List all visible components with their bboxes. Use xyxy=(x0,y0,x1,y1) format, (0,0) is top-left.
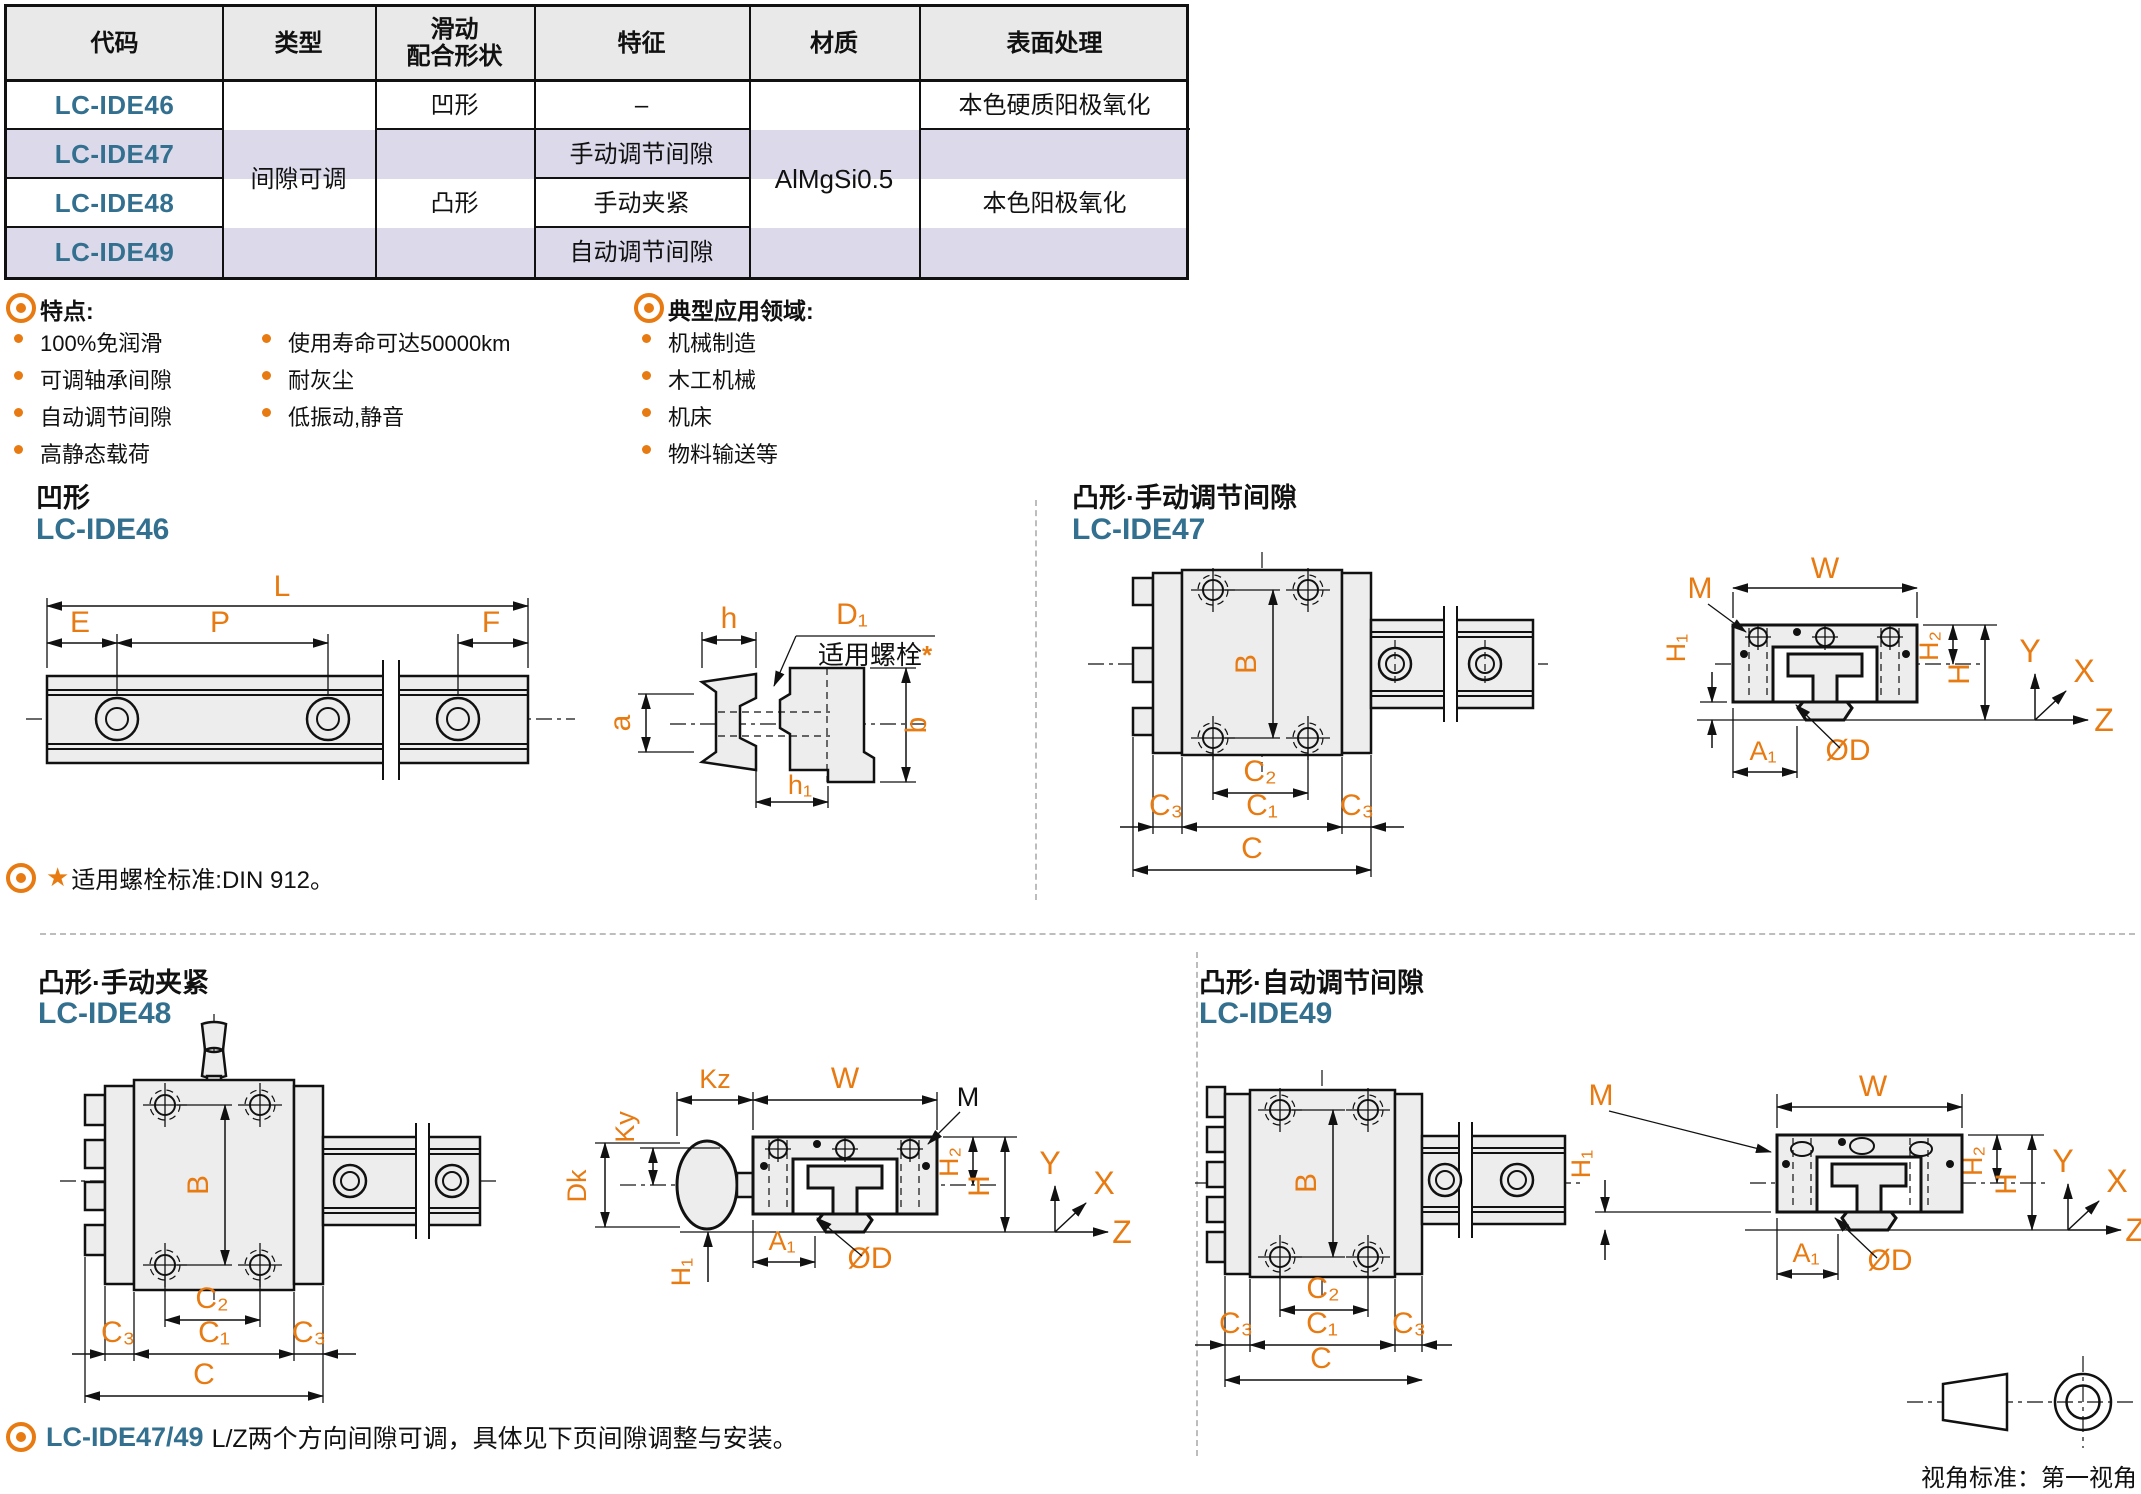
col-header-type: 类型 xyxy=(222,7,375,79)
code-label: LC-IDE46 xyxy=(55,92,175,119)
col-header-type-label: 类型 xyxy=(275,30,323,57)
bolt-callout-text: 适用螺栓 xyxy=(818,640,922,670)
section-title-ide49: 凸形·自动调节间隙 xyxy=(1199,961,1424,1000)
dim-label-C2: C₂ xyxy=(195,1282,228,1315)
application-item: 木工机械 xyxy=(668,363,756,395)
bolt-note-text: 适用螺栓标准:DIN 912。 xyxy=(71,860,334,895)
dim-label-C3-right: C₃ xyxy=(1340,789,1374,822)
bullet-icon xyxy=(642,334,651,343)
axis-label-y: Y xyxy=(2052,1143,2073,1179)
adjust-note-code: LC-IDE47/49 xyxy=(46,1422,204,1453)
dim-label-C1: C₁ xyxy=(1306,1307,1338,1340)
ide49-drawing: B C₂ C₁ C₃ C₃ C xyxy=(1205,1012,2141,1402)
col-header-slide-line1: 滑动 xyxy=(431,16,479,43)
dim-label-D1: D₁ xyxy=(836,598,868,631)
bullseye-icon xyxy=(6,863,36,893)
col-header-feature: 特征 xyxy=(534,7,749,79)
feature-cell-4: 自动调节间隙 xyxy=(534,228,749,277)
col-header-surface-label: 表面处理 xyxy=(1007,30,1103,57)
dim-label-H1: H₁ xyxy=(666,1258,696,1287)
dim-label-W: W xyxy=(1811,552,1840,585)
bullet-icon xyxy=(262,334,271,343)
carriage-cross-section: M W H₁ H₂ H A₁ ØD Y X xyxy=(1661,552,2114,778)
dim-label-W: W xyxy=(1859,1070,1888,1103)
bullseye-icon xyxy=(6,1422,36,1452)
ide47-drawing: B C₂ C₁ C₃ C₃ C xyxy=(1100,550,2141,905)
dim-label-Kz: Kz xyxy=(699,1064,731,1094)
feature-label: 手动调节间隙 xyxy=(570,141,714,168)
application-item: 机械制造 xyxy=(668,326,756,358)
feature-item: 100%免润滑 xyxy=(40,326,162,358)
material-merged-cell: AlMgSi0.5 xyxy=(749,81,919,277)
feature-item: 低振动,静音 xyxy=(288,400,404,432)
code-label: LC-IDE48 xyxy=(55,190,175,217)
feature-cell-2: 手动调节间隙 xyxy=(534,130,749,179)
ide48-drawing: B C₂ C₁ C₃ C₃ C xyxy=(20,1010,1130,1410)
application-item: 机床 xyxy=(668,400,712,432)
dim-label-A1: A₁ xyxy=(768,1226,795,1256)
carriage-cross-section: Kz W Ky Dk M H₂ H H₁ A₁ ØD xyxy=(562,1062,1132,1286)
col-header-slide-line2: 配合形状 xyxy=(407,43,503,70)
axis-label-y: Y xyxy=(1039,1145,1060,1181)
bolt-callout: 适用螺栓* xyxy=(818,640,933,670)
section-code-ide47: LC-IDE47 xyxy=(1072,513,1205,547)
dim-label-H2: H₂ xyxy=(1914,631,1944,661)
bullet-icon xyxy=(14,371,23,380)
bullseye-icon xyxy=(6,293,36,323)
rail-cross-section: h a b h₁ D₁ 适用螺栓* xyxy=(604,598,935,808)
feature-item: 使用寿命可达50000km xyxy=(288,326,511,358)
dim-label-H2: H₂ xyxy=(934,1147,964,1177)
dim-label-C3-right: C₃ xyxy=(292,1316,326,1349)
dim-label-H: H xyxy=(963,1175,996,1197)
axes-icon: Y X Z xyxy=(1039,1145,1131,1250)
bullet-icon xyxy=(14,445,23,454)
bullet-icon xyxy=(642,408,651,417)
axis-label-z: Z xyxy=(2125,1212,2141,1248)
surface-cell-1: 本色硬质阳极氧化 xyxy=(919,81,1190,130)
axis-label-x: X xyxy=(2106,1163,2127,1199)
shape-label: 凸形 xyxy=(431,190,479,217)
shape-cell-convex: 凸形 xyxy=(375,130,534,277)
dim-label-C1: C₁ xyxy=(1246,789,1278,822)
col-header-code-label: 代码 xyxy=(91,30,139,57)
dim-label-B: B xyxy=(1290,1173,1323,1193)
code-cell-ide46: LC-IDE46 xyxy=(7,81,222,130)
application-item: 物料输送等 xyxy=(668,437,778,469)
dim-label-M: M xyxy=(1688,572,1713,605)
bullet-icon xyxy=(262,371,271,380)
catalog-page: 代码 类型 滑动 配合形状 特征 材质 表面处理 LC-IDE46 LC-IDE… xyxy=(0,0,2141,1494)
surface-label: 本色硬质阳极氧化 xyxy=(959,92,1151,119)
section-title-ide46: 凹形 xyxy=(36,476,90,515)
dim-label-Ky: Ky xyxy=(610,1111,640,1143)
col-header-feature-label: 特征 xyxy=(618,30,666,57)
features-title: 特点: xyxy=(40,292,94,326)
dim-label-L: L xyxy=(274,570,291,603)
col-header-material-label: 材质 xyxy=(810,30,858,57)
dim-label-C3-left: C₃ xyxy=(1149,789,1183,822)
adjust-note: LC-IDE47/49 L/Z两个方向间隙可调，具体见下页间隙调整与安装。 xyxy=(6,1419,798,1455)
shape-label: 凹形 xyxy=(431,92,479,119)
code-label: LC-IDE47 xyxy=(55,141,175,168)
material-label: AlMgSi0.5 xyxy=(775,166,894,193)
view-standard-label: 视角标准：第一视角 xyxy=(1855,1458,2137,1493)
dim-label-H1: H₁ xyxy=(1566,1150,1596,1179)
dim-label-C2: C₂ xyxy=(1243,755,1276,788)
dim-label-C3-right: C₃ xyxy=(1392,1307,1426,1340)
feature-label: 手动夹紧 xyxy=(594,190,690,217)
dim-label-h: h xyxy=(721,602,738,635)
carriage-cross-section: M W H₁ H₂ H A₁ ØD Y X xyxy=(1566,1070,2141,1280)
bullseye-icon xyxy=(634,293,664,323)
applications-title: 典型应用领域: xyxy=(668,292,814,326)
feature-label: 自动调节间隙 xyxy=(570,239,714,266)
dim-label-C: C xyxy=(193,1358,215,1391)
feature-cell-3: 手动夹紧 xyxy=(534,179,749,228)
feature-item: 高静态载荷 xyxy=(40,437,150,469)
spec-table: 代码 类型 滑动 配合形状 特征 材质 表面处理 LC-IDE46 LC-IDE… xyxy=(4,4,1189,280)
shape-cell-concave: 凹形 xyxy=(375,81,534,130)
dim-label-OD: ØD xyxy=(848,1242,893,1275)
axes-icon: Y X Z xyxy=(2052,1143,2141,1248)
dim-label-E: E xyxy=(70,606,90,639)
first-angle-projection-icon xyxy=(1895,1352,2141,1452)
dim-label-H2: H₂ xyxy=(1958,1146,1988,1176)
axis-label-x: X xyxy=(2073,653,2094,689)
surface-label: 本色阳极氧化 xyxy=(983,190,1127,217)
rail-side-view xyxy=(26,660,575,780)
carriage-top-view: B C₂ C₁ C₃ C₃ C xyxy=(1195,1070,1585,1387)
section-title-ide47: 凸形·手动调节间隙 xyxy=(1072,476,1297,515)
dim-label-a: a xyxy=(604,714,637,731)
bullet-icon xyxy=(14,408,23,417)
dim-label-F: F xyxy=(482,606,500,639)
dim-label-C2: C₂ xyxy=(1306,1272,1339,1305)
code-cell-ide49: LC-IDE49 xyxy=(7,228,222,277)
code-label: LC-IDE49 xyxy=(55,239,175,266)
col-header-material: 材质 xyxy=(749,7,919,79)
code-cell-ide48: LC-IDE48 xyxy=(7,179,222,228)
dim-label-H: H xyxy=(1990,1173,2023,1195)
feature-cell-1: – xyxy=(534,81,749,130)
section-code-ide46: LC-IDE46 xyxy=(36,513,169,547)
col-header-slide-fit: 滑动 配合形状 xyxy=(375,7,534,79)
dim-label-W: W xyxy=(831,1062,860,1095)
dim-label-C3-left: C₃ xyxy=(1219,1307,1253,1340)
bullet-icon xyxy=(642,445,651,454)
feature-label: – xyxy=(635,92,648,119)
axis-label-x: X xyxy=(1093,1165,1114,1201)
star-icon: ★ xyxy=(46,862,69,893)
dim-label-C3-left: C₃ xyxy=(101,1316,135,1349)
dim-label-OD: ØD xyxy=(1868,1244,1913,1277)
dim-label-C: C xyxy=(1310,1342,1332,1375)
type-merged-cell: 间隙可调 xyxy=(222,81,375,277)
dim-label-Dk: Dk xyxy=(562,1169,592,1202)
dim-label-OD: ØD xyxy=(1826,734,1871,767)
dim-label-C1: C₁ xyxy=(198,1316,230,1349)
dim-label-A1: A₁ xyxy=(1792,1238,1819,1268)
col-header-surface: 表面处理 xyxy=(919,7,1190,79)
section-divider-horizontal xyxy=(40,933,2135,935)
axis-label-z: Z xyxy=(1112,1214,1132,1250)
bullet-icon xyxy=(14,334,23,343)
axes-icon: Y X Z xyxy=(2019,633,2113,738)
dim-label-C: C xyxy=(1241,832,1263,865)
type-label: 间隙可调 xyxy=(251,166,347,193)
code-cell-ide47: LC-IDE47 xyxy=(7,130,222,179)
feature-item: 耐灰尘 xyxy=(288,363,354,395)
bolt-standard-note: ★ 适用螺栓标准:DIN 912。 xyxy=(6,860,334,895)
axis-label-y: Y xyxy=(2019,633,2040,669)
dim-label-P: P xyxy=(210,606,230,639)
bullet-icon xyxy=(642,371,651,380)
dim-label-H: H xyxy=(1943,663,1976,685)
adjust-note-text: L/Z两个方向间隙可调，具体见下页间隙调整与安装。 xyxy=(212,1419,798,1455)
section-title-ide48: 凸形·手动夹紧 xyxy=(38,961,209,1000)
dim-label-M: M xyxy=(1589,1079,1614,1112)
ide46-drawing: L E P F h a b h₁ xyxy=(30,556,1040,901)
dim-label-B: B xyxy=(1230,654,1263,674)
dim-label-A1: A₁ xyxy=(1749,736,1776,766)
feature-item: 自动调节间隙 xyxy=(40,400,172,432)
dim-label-M: M xyxy=(957,1082,980,1112)
bullet-icon xyxy=(262,408,271,417)
col-header-code: 代码 xyxy=(7,7,222,79)
dim-label-h1: h₁ xyxy=(788,770,812,800)
carriage-top-view: B C₂ C₁ C₃ C₃ C xyxy=(60,1014,500,1403)
section-divider-vertical-bottom xyxy=(1196,952,1198,1456)
bolt-callout-star: * xyxy=(922,640,933,670)
dim-label-B: B xyxy=(182,1175,215,1195)
axis-label-z: Z xyxy=(2094,702,2114,738)
dim-label-b: b xyxy=(900,717,933,734)
dim-label-H1: H₁ xyxy=(1661,634,1691,663)
carriage-top-view: B C₂ C₁ C₃ C₃ C xyxy=(1088,552,1548,877)
surface-merged-cell: 本色阳极氧化 xyxy=(919,130,1190,277)
feature-item: 可调轴承间隙 xyxy=(40,363,172,395)
